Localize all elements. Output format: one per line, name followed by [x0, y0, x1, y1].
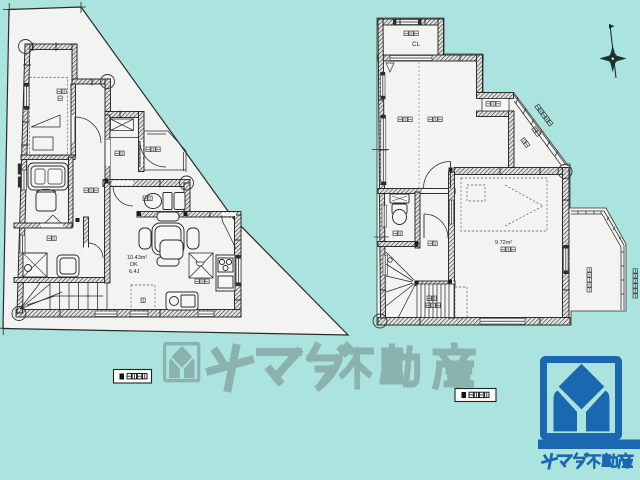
svg-text:9.72m²: 9.72m²	[495, 240, 512, 246]
svg-text:DK: DK	[130, 262, 138, 268]
svg-text:10.43m²: 10.43m²	[127, 255, 147, 261]
svg-text:CL: CL	[412, 42, 420, 48]
svg-text:6.4J: 6.4J	[129, 269, 140, 275]
